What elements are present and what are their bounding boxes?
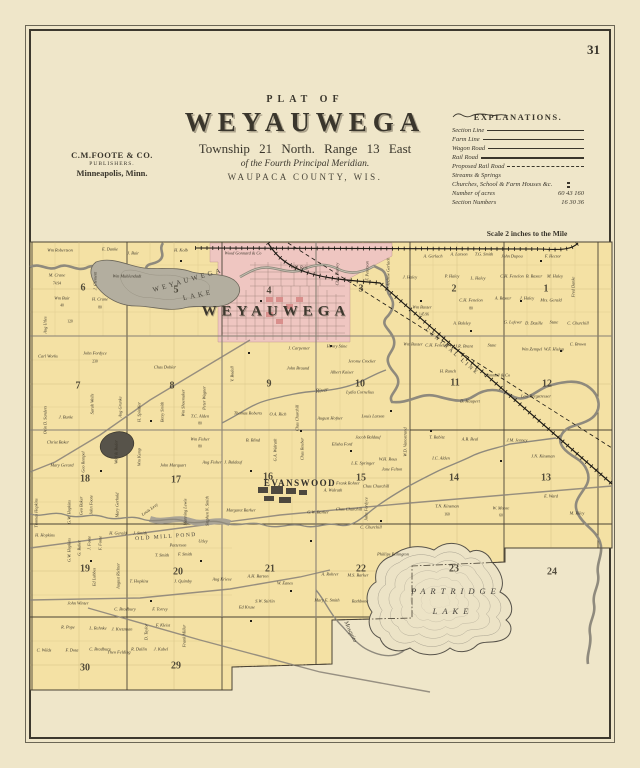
- owner-label: Mrs. Gerald: [540, 299, 561, 303]
- section-number: 4: [267, 286, 272, 297]
- section-number: 30: [80, 663, 90, 674]
- owner-label: J. Baldauf: [224, 461, 242, 465]
- section-number: 13: [541, 473, 551, 484]
- owner-label: B. Blind: [246, 439, 260, 443]
- owner-label: Wood Gonnard & Co: [225, 252, 262, 256]
- section-number: 7: [76, 381, 81, 392]
- owner-label: C. Churchill: [360, 526, 381, 530]
- owner-label: Manning Lewis: [184, 499, 188, 526]
- owner-label: Geo Rempel: [82, 451, 86, 472]
- owner-label: Aug Kriese: [212, 578, 231, 582]
- owner-label: J. Haley: [403, 276, 417, 280]
- owner-label: H. Hopkins: [35, 534, 55, 538]
- owner-label: G. Baker: [78, 540, 82, 556]
- section-number: 2: [452, 284, 457, 295]
- owner-label: State: [488, 344, 497, 348]
- owner-label: Theo Felding: [107, 651, 130, 655]
- owner-label: Geo Baker: [80, 497, 84, 516]
- owner-label: H. Spindler: [138, 402, 142, 422]
- owner-label: Wm Zempel: [522, 348, 543, 352]
- owner-label: J.R. Brant: [455, 345, 473, 349]
- owner-label: Wm Baxter: [412, 306, 431, 310]
- owner-label: 74.94: [53, 282, 61, 286]
- owner-label: C. Bradbury: [114, 608, 136, 612]
- owner-label: V. Bodell: [231, 366, 235, 382]
- section-number: 14: [449, 473, 459, 484]
- owner-label: Mary Gerhold: [116, 493, 120, 518]
- owner-label: G.W. Hopkins: [68, 538, 72, 562]
- owner-label: T.C. Alden: [191, 415, 209, 419]
- owner-label: Aug Grunke: [119, 396, 123, 417]
- section-number: 18: [80, 474, 90, 485]
- owner-label: M. Haley: [547, 275, 563, 279]
- owner-label: Aug Fisher: [202, 461, 221, 465]
- owner-label: Andrew Gerlach: [387, 258, 391, 287]
- owner-label: C. Brown: [570, 343, 586, 347]
- section-number: 23: [449, 564, 459, 575]
- owner-label: Peter Wagner: [203, 386, 207, 410]
- owner-label: J. Haley: [520, 297, 534, 301]
- owner-label: C. Wilds: [37, 649, 52, 653]
- owner-label: I.C. Alden: [432, 457, 450, 461]
- owner-label: Chas Churchill: [296, 405, 300, 431]
- owner-label: O.A. Rich: [270, 413, 287, 417]
- owner-label: Wm Shoemaker: [182, 390, 186, 417]
- owner-label: Wm Robertson: [47, 249, 73, 253]
- owner-label: Christ Baker: [47, 441, 69, 445]
- owner-label: John Fordyce: [365, 497, 369, 521]
- owner-label: State: [550, 321, 559, 325]
- owner-label: F. Dota: [66, 649, 79, 653]
- owner-label: A. Gerlach: [424, 255, 443, 259]
- owner-label: F. Smith: [178, 553, 192, 557]
- owner-label: D. Haupert: [460, 400, 480, 404]
- owner-label: Mary E. Smith: [314, 599, 339, 603]
- section-number: 22: [356, 564, 366, 575]
- section-number: 17: [171, 475, 181, 486]
- owner-label: 80: [469, 307, 473, 311]
- owner-label: F. Peterson: [366, 261, 370, 281]
- owner-label: Ed Kruse: [239, 606, 255, 610]
- section-number: 8: [170, 381, 175, 392]
- owner-label: Lydia Cornelius: [346, 391, 374, 395]
- owner-label: Jane Felton: [382, 468, 403, 472]
- owner-label: A.B. Beal: [462, 438, 478, 442]
- owner-label: Patterson: [170, 544, 187, 548]
- place-label: PARTRIDGE: [411, 586, 501, 596]
- owner-label: John Marquart: [160, 464, 186, 468]
- place-label: WEYAUWEGA: [202, 304, 351, 321]
- section-number: 1: [544, 284, 549, 295]
- owner-label: T. Smith: [155, 554, 169, 558]
- owner-label: J. Bair: [127, 252, 139, 256]
- owner-label: J. Carpenter: [288, 347, 310, 351]
- owner-label: E. Danke: [102, 248, 118, 252]
- owner-label: Margaret Barker: [226, 509, 255, 513]
- owner-label: S.W. Stirlin: [255, 600, 274, 604]
- owner-label: L. Haley: [471, 277, 486, 281]
- owner-label: J. Clement: [94, 272, 98, 290]
- owner-label: Chas Harvey: [336, 263, 340, 286]
- owner-label: W.H. Rous: [379, 458, 397, 462]
- owner-label: Frank Miller: [183, 625, 187, 647]
- owner-label: H. Crane: [92, 298, 108, 302]
- owner-label: J. Burke: [59, 416, 73, 420]
- owner-label: 60: [499, 514, 503, 518]
- owner-label: John Foote: [90, 495, 94, 515]
- owner-label: Sarah Wells: [91, 394, 95, 415]
- owner-label: Phillips Billington: [377, 553, 409, 557]
- owner-label: Chas Reuber: [301, 438, 305, 460]
- owner-label: J. Kretzman: [112, 628, 133, 632]
- owner-label: Louis Larson: [362, 415, 385, 419]
- owner-label: 80: [198, 422, 202, 426]
- atlas-page: { "page": {"number": "31"}, "publisher":…: [0, 0, 640, 768]
- owner-label: H. Kolb: [174, 249, 188, 253]
- owner-label: C. Churchill: [567, 322, 588, 326]
- owner-label: Chas Churchill: [336, 508, 362, 512]
- owner-label: J. Kabel: [154, 648, 168, 652]
- owner-label: August Richter: [117, 563, 121, 589]
- owner-label: A. Larson: [450, 253, 467, 257]
- owner-label: Elisha Ford: [332, 443, 353, 447]
- owner-label: P. Haley: [445, 275, 460, 279]
- section-number: 12: [542, 379, 552, 390]
- section-number: 6: [81, 283, 86, 294]
- owner-label: Gammell & Co: [484, 374, 510, 378]
- owner-label: John Braund: [287, 367, 309, 371]
- owner-label: A.H. Barton: [247, 575, 268, 579]
- owner-label: A. Rohrer: [322, 573, 339, 577]
- section-number: 10: [355, 379, 365, 390]
- owner-label: G.A. Walrath: [274, 439, 278, 462]
- section-number: 15: [356, 473, 366, 484]
- owner-label: R. Dallin: [131, 648, 147, 652]
- owner-label: Mary Gerard: [50, 464, 73, 468]
- owner-label: Wm Baxter: [403, 343, 422, 347]
- owner-label: Wolf & Bader: [115, 440, 119, 464]
- owner-label: 80: [98, 306, 102, 310]
- owner-label: Carl Works: [38, 355, 58, 359]
- section-number: 29: [171, 661, 181, 672]
- owner-label: Chas Dobler: [154, 366, 176, 370]
- owner-label: Henry Stine: [327, 345, 348, 349]
- place-label: EVANSWOOD: [264, 478, 336, 488]
- owner-label: 120: [67, 320, 72, 324]
- owner-label: C.H. Fenelon: [500, 275, 523, 279]
- owner-label: H. Gerald: [109, 532, 127, 536]
- owner-label: Rathbone: [352, 600, 369, 604]
- owner-label: Jacob Baldauf: [355, 436, 380, 440]
- owner-label: Levi Bergstresser: [521, 395, 551, 399]
- owner-label: Wm Kemp: [138, 448, 142, 466]
- owner-label: M. Crane: [49, 274, 66, 278]
- owner-label: Thomas Hopkins: [35, 498, 39, 527]
- owner-label: J.N. Kinsman: [531, 455, 554, 459]
- owner-label: W.F. Hislop: [544, 348, 564, 352]
- owner-label: John Dupou: [501, 255, 522, 259]
- owner-label: A. Walrath: [324, 489, 343, 493]
- owner-label: W. Eanes: [277, 582, 293, 586]
- owner-label: E. Ward: [544, 495, 558, 499]
- section-number: 24: [547, 567, 557, 578]
- owner-label: L.E. Springer: [351, 462, 374, 466]
- owner-label: R. Pope: [61, 626, 75, 630]
- section-number: 9: [267, 379, 272, 390]
- owner-label: H. Ranch: [440, 370, 456, 374]
- owner-label: 160: [444, 513, 449, 517]
- owner-label: G.W. Hopkins: [68, 500, 72, 524]
- owner-label: D. Dazille: [525, 322, 543, 326]
- owner-label: A. Baxter: [495, 297, 511, 301]
- owner-label: 80: [198, 445, 202, 449]
- owner-label: Betsy Smith: [161, 402, 165, 422]
- section-number: 3: [359, 284, 364, 295]
- owner-label: L. Rehnke: [89, 627, 106, 631]
- owner-label: J. Quimby: [174, 580, 192, 584]
- owner-label: Wm Muhlendadt: [113, 275, 142, 279]
- owner-label: F. Torrey: [152, 608, 167, 612]
- owner-label: M. Riley: [570, 512, 585, 516]
- section-number: 20: [173, 567, 183, 578]
- section-number: 21: [265, 564, 275, 575]
- owner-label: Wm Fisher: [190, 438, 209, 442]
- owner-label: G. Lefever: [504, 321, 522, 325]
- owner-label: W.H. Reis: [290, 266, 307, 270]
- owner-label: G.W. Barker: [307, 511, 329, 515]
- owner-label: F. Foote: [99, 536, 103, 550]
- owner-label: 145.96: [419, 313, 429, 317]
- owner-label: C.H. Fenelon: [459, 299, 482, 303]
- owner-label: Fred Danke: [572, 277, 576, 298]
- owner-label: John Winter: [67, 602, 88, 606]
- owner-label: D. Taylor: [145, 624, 149, 640]
- owner-label: A. Balsley: [453, 322, 471, 326]
- section-number: 11: [450, 378, 459, 389]
- place-label: LAKE: [433, 606, 474, 616]
- owner-label: T.N. Kinsman: [435, 505, 459, 509]
- owner-label: Wm Bair: [54, 297, 69, 301]
- owner-label: T. Hopkins: [130, 580, 149, 584]
- owner-label: Aug Utles: [44, 316, 48, 333]
- owner-label: F. Kleist: [156, 624, 170, 628]
- owner-label: 230: [92, 360, 97, 364]
- owner-label: Jerome Crocker: [348, 360, 376, 364]
- owner-label: Thomas Roberts: [234, 412, 262, 416]
- owner-label: Albert Kaiser: [330, 371, 353, 375]
- owner-label: John Fordyce: [83, 352, 107, 356]
- owner-label: Stephen N. Smith: [206, 496, 210, 526]
- owner-label: W. Moore: [493, 507, 510, 511]
- section-number: 19: [80, 564, 90, 575]
- owner-label: T. Babitz: [429, 436, 444, 440]
- owner-label: Orin D. Sanders: [44, 406, 48, 434]
- owner-label: August Hofner: [317, 417, 342, 421]
- owner-label: B. Baxter: [526, 275, 542, 279]
- owner-label: W.D. Vanostrand: [404, 427, 408, 456]
- owner-label: T.G. Smith: [475, 253, 493, 257]
- owner-label: J.M. Jenney: [507, 439, 528, 443]
- owner-label: J. Foote: [88, 536, 92, 550]
- owner-label: 40: [60, 304, 64, 308]
- owner-label: Utley: [198, 540, 207, 544]
- owner-label: Ed Lubbes: [93, 568, 97, 586]
- owner-label: Chas Churchill: [363, 485, 389, 489]
- owner-label: F. Hector: [545, 255, 561, 259]
